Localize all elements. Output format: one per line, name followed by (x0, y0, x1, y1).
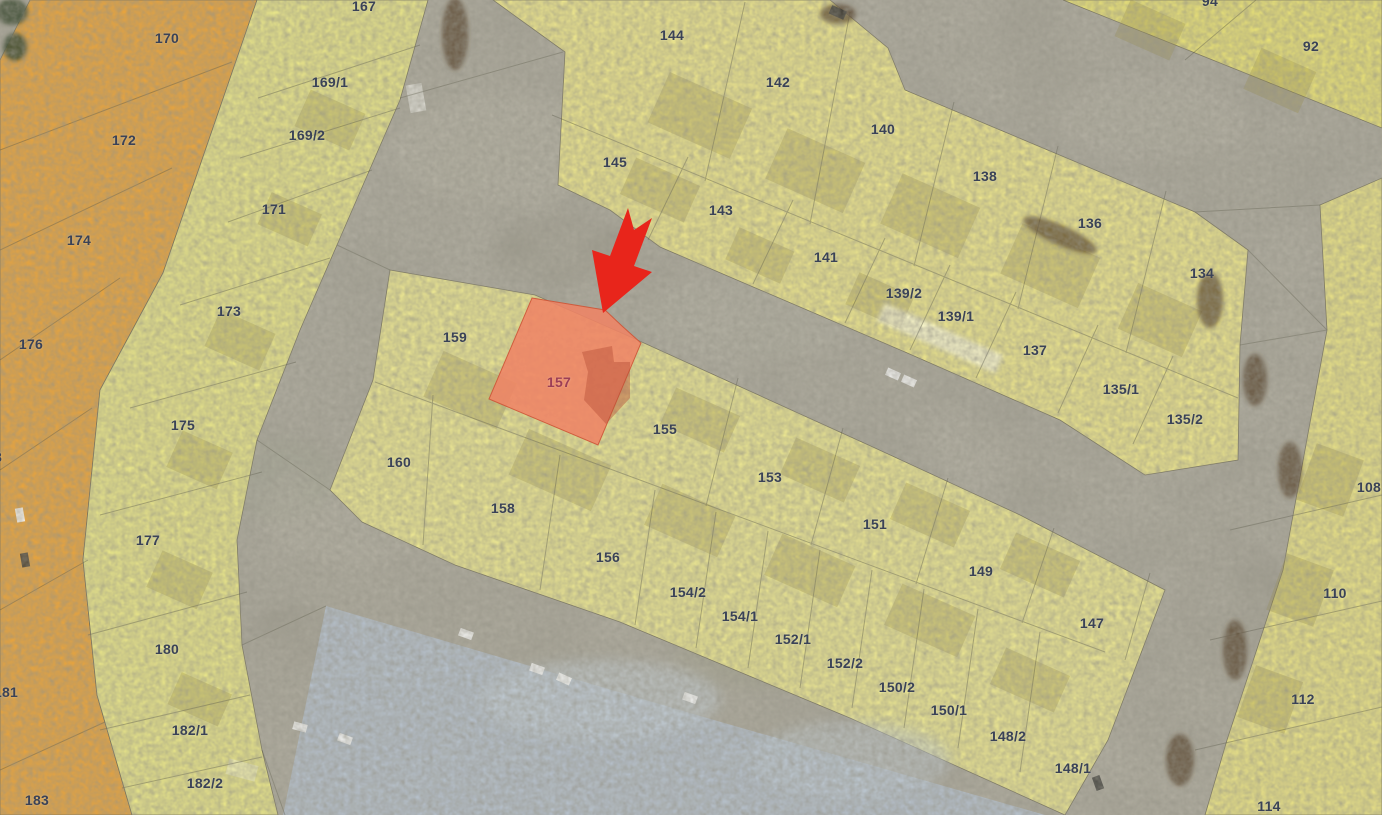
map-viewport[interactable]: 170172174176178181183167169/1169/2171173… (0, 0, 1382, 828)
map-canvas (0, 0, 1382, 828)
grain-overlay (0, 0, 1382, 815)
bottom-margin (0, 815, 1382, 828)
